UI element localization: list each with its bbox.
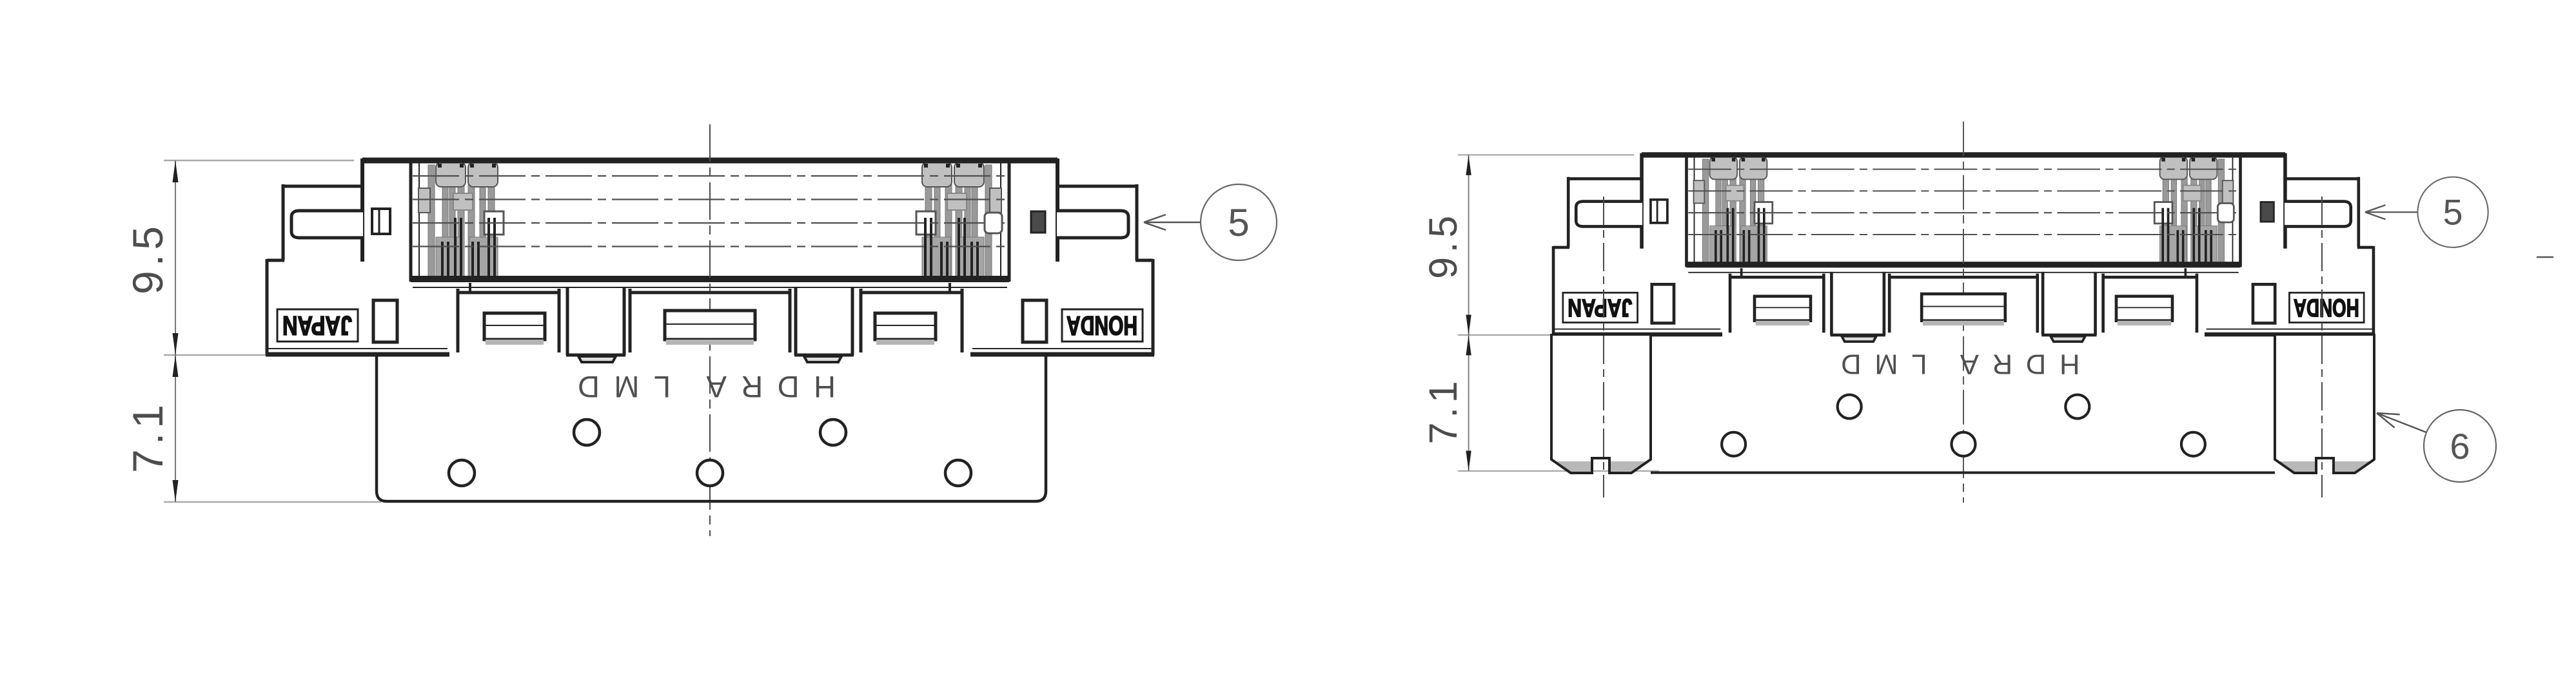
svg-text:6: 6 — [2450, 426, 2470, 467]
